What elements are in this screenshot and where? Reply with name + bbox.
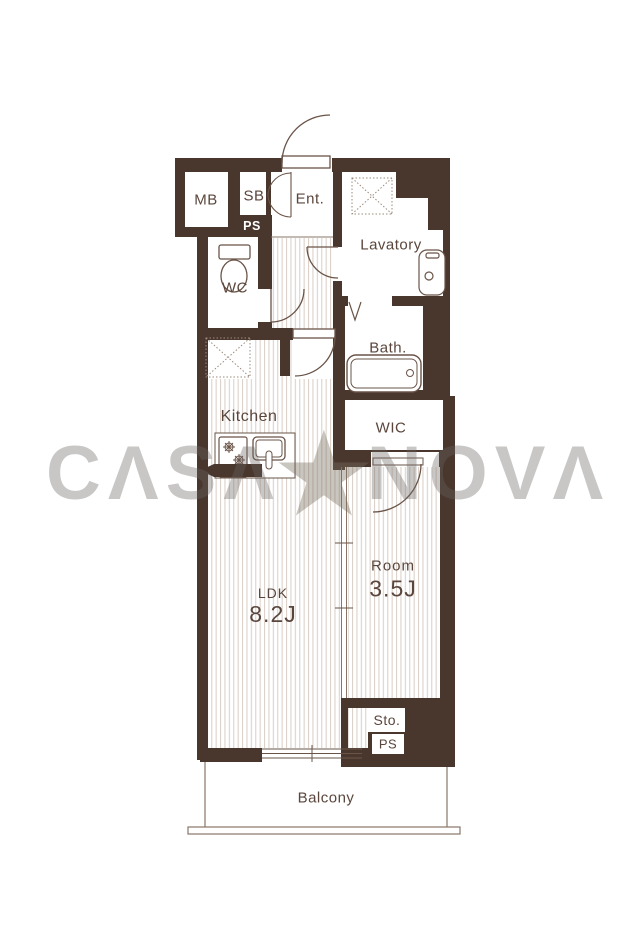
entrance-door [282,115,330,168]
floor-areas [207,238,440,750]
label-storage: Sto. [374,713,401,727]
washbasin-icon [419,250,445,295]
label-room: Room 3.5J [369,559,416,602]
folding-door-icon [268,172,291,217]
label-ps-lower: PS [379,738,397,751]
label-ps-upper: PS [243,220,261,233]
label-mb: MB [194,193,218,208]
label-ldk-name: LDK [249,586,296,601]
label-wic: WIC [376,421,407,436]
label-sb: SB [243,189,264,204]
bathtub-icon [347,355,421,392]
label-lavatory: Lavatory [360,238,422,253]
label-room-name: Room [369,559,416,576]
label-ldk: LDK 8.2J [249,586,296,628]
floorplan-page: MB SB PS Ent. Lavatory WC Bath. Kitchen … [0,0,630,950]
label-kitchen: Kitchen [221,409,278,425]
label-wc: WC [222,281,248,296]
floorplan-drawing [0,0,630,950]
label-balcony: Balcony [298,791,355,806]
label-bath: Bath. [369,341,407,356]
label-ldk-size: 8.2J [249,601,296,627]
label-room-size: 3.5J [369,575,416,601]
label-entrance: Ent. [296,192,325,207]
